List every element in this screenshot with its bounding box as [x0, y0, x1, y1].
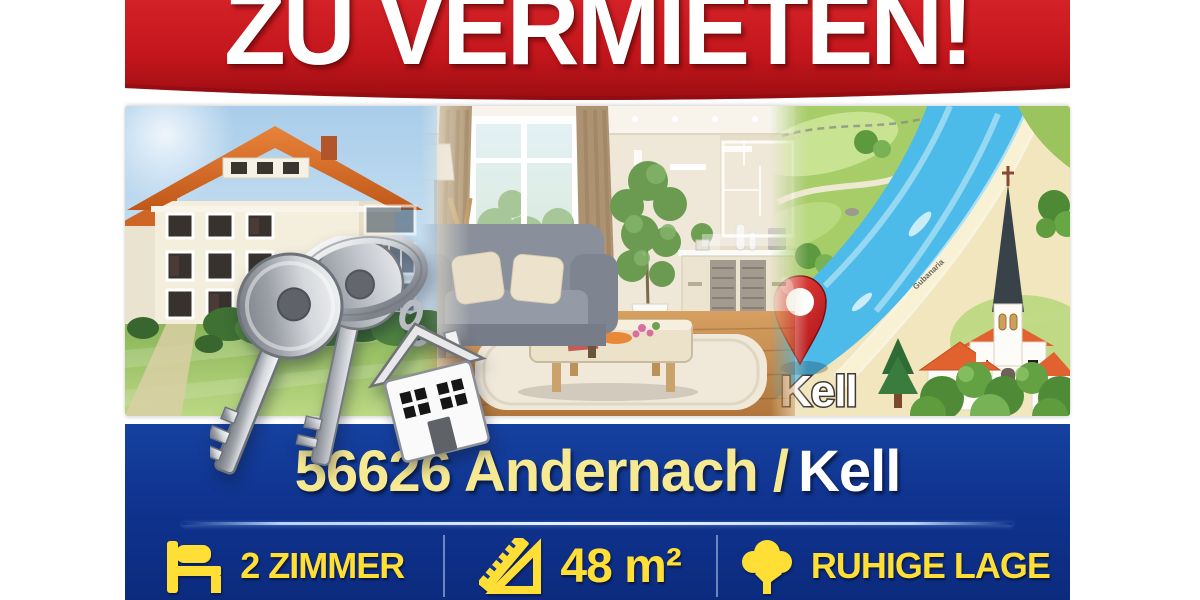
rental-ad-poster: ZU VERMIETEN! [0, 0, 1200, 600]
features-row: 2 ZIMMER 48 m² [125, 535, 1070, 597]
feature-area: 48 m² [443, 535, 718, 597]
tree-icon [738, 538, 796, 594]
title-banner: ZU VERMIETEN! [125, 0, 1070, 112]
feature-location-quality: RUHIGE LAGE [718, 535, 1070, 597]
feature-location-label: RUHIGE LAGE [811, 545, 1050, 587]
poster-content: ZU VERMIETEN! [125, 0, 1070, 600]
keys-illustration [210, 236, 540, 488]
house-keychain-icon [359, 310, 503, 466]
map-illustration: Gubanaria [770, 106, 1070, 416]
location-secondary: Kell [798, 439, 900, 504]
feature-area-label: 48 m² [560, 539, 680, 594]
feature-rooms-label: 2 ZIMMER [240, 545, 404, 587]
divider-line [182, 522, 1014, 525]
bed-icon [163, 539, 225, 593]
map-pin-label: Kell [780, 367, 857, 416]
poster-title: ZU VERMIETEN! [139, 0, 1056, 89]
feature-rooms: 2 ZIMMER [125, 535, 443, 597]
area-ruler-icon [479, 538, 545, 594]
